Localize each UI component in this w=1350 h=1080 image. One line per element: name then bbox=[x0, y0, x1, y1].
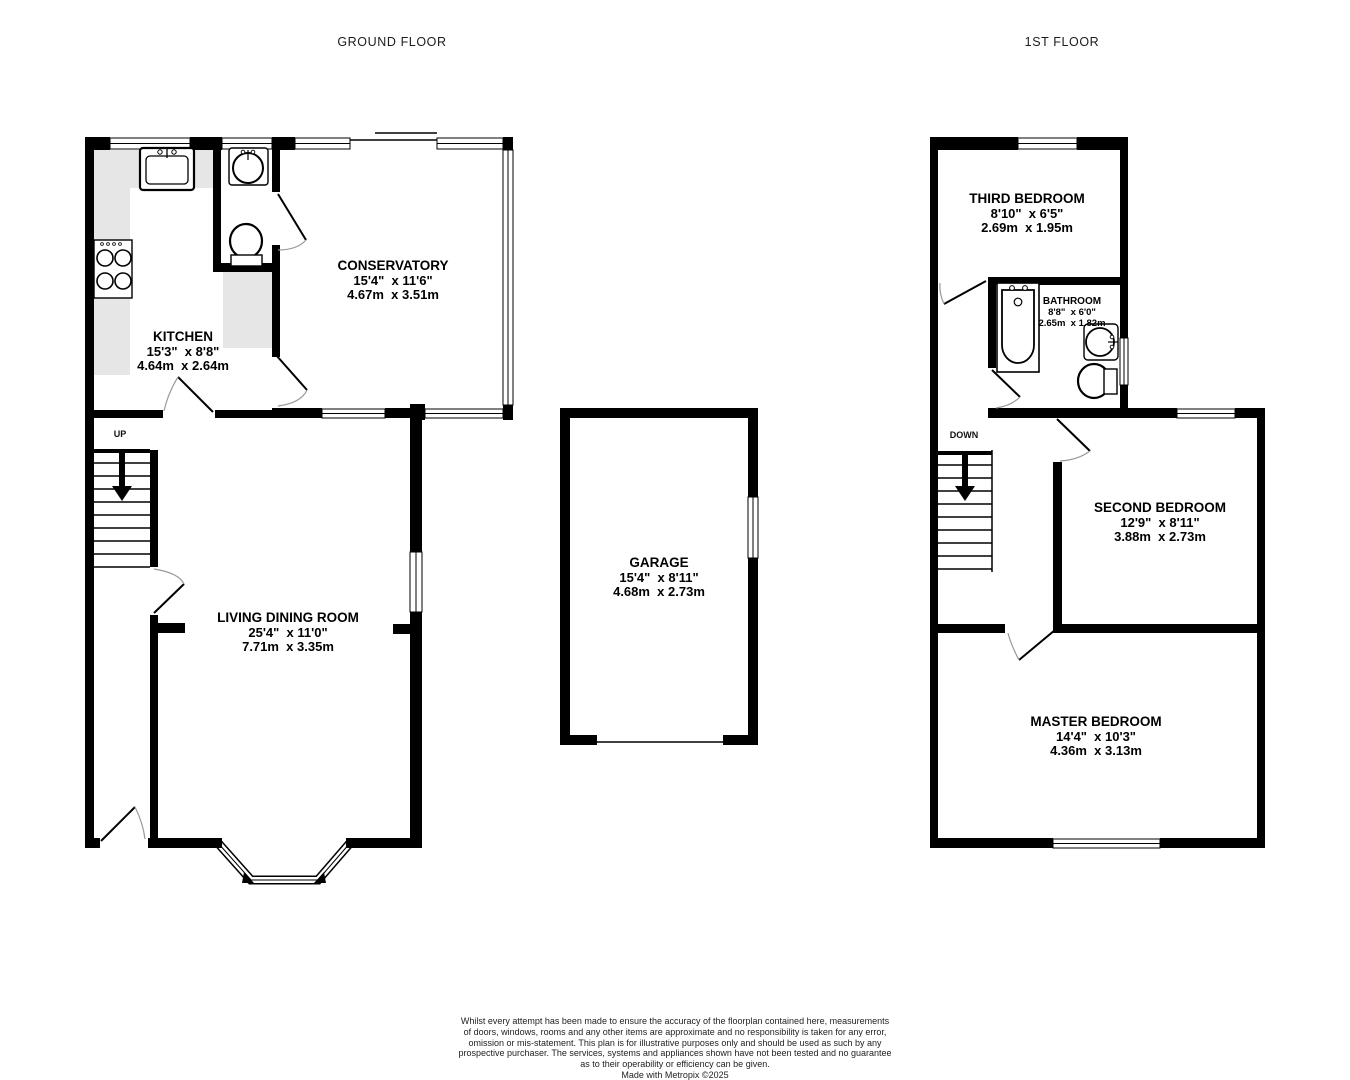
kitchen-sink-icon bbox=[140, 148, 194, 190]
room-dim-imperial: 8'10" x 6'5" bbox=[917, 207, 1137, 222]
stairs-up-arrow-icon bbox=[112, 453, 132, 501]
bathroom-basin-icon bbox=[1084, 324, 1118, 360]
garage-label: GARAGE 15'4" x 8'11" 4.68m x 2.73m bbox=[549, 556, 769, 600]
room-name: SECOND BEDROOM bbox=[1050, 501, 1270, 516]
second-bedroom-label: SECOND BEDROOM 12'9" x 8'11" 3.88m x 2.7… bbox=[1050, 501, 1270, 545]
stairs-down bbox=[938, 450, 992, 572]
room-name: GARAGE bbox=[549, 556, 769, 571]
stairs-up bbox=[94, 449, 150, 567]
garage-window bbox=[748, 497, 758, 558]
room-name: KITCHEN bbox=[73, 330, 293, 345]
ground-walls bbox=[85, 137, 513, 848]
disclaimer-line: of doors, windows, rooms and any other i… bbox=[0, 1027, 1350, 1038]
stairs-down-label: DOWN bbox=[943, 430, 985, 440]
conservatory-label: CONSERVATORY 15'4" x 11'6" 4.67m x 3.51m bbox=[283, 259, 503, 303]
room-dim-metric: 2.69m x 1.95m bbox=[917, 221, 1137, 236]
disclaimer: Whilst every attempt has been made to en… bbox=[0, 1016, 1350, 1080]
room-name: BATHROOM bbox=[992, 296, 1152, 307]
room-dim-metric: 4.67m x 3.51m bbox=[283, 288, 503, 303]
disclaimer-line: prospective purchaser. The services, sys… bbox=[0, 1048, 1350, 1059]
ground-floor-title: GROUND FLOOR bbox=[292, 35, 492, 49]
room-dim-imperial: 14'4" x 10'3" bbox=[986, 730, 1206, 745]
room-name: LIVING DINING ROOM bbox=[178, 611, 398, 626]
room-dim-metric: 4.64m x 2.64m bbox=[73, 359, 293, 374]
room-dim-imperial: 8'8" x 6'0" bbox=[992, 307, 1152, 318]
room-dim-imperial: 15'4" x 11'6" bbox=[283, 274, 503, 289]
first-floor-title: 1ST FLOOR bbox=[962, 35, 1162, 49]
room-dim-imperial: 15'4" x 8'11" bbox=[549, 571, 769, 586]
floorplan-page: GROUND FLOOR 1ST FLOOR KITCHEN 15'3" x 8… bbox=[0, 0, 1350, 1080]
ground-floor-plan bbox=[85, 133, 513, 883]
room-dim-metric: 4.68m x 2.73m bbox=[549, 585, 769, 600]
room-dim-imperial: 25'4" x 11'0" bbox=[178, 626, 398, 641]
disclaimer-line: omission or mis-statement. This plan is … bbox=[0, 1038, 1350, 1049]
wc-basin-icon bbox=[229, 148, 268, 185]
room-dim-imperial: 15'3" x 8'8" bbox=[73, 345, 293, 360]
room-name: MASTER BEDROOM bbox=[986, 715, 1206, 730]
third-bedroom-label: THIRD BEDROOM 8'10" x 6'5" 2.69m x 1.95m bbox=[917, 192, 1137, 236]
disclaimer-line: as to their operability or efficiency ca… bbox=[0, 1059, 1350, 1070]
living-dining-label: LIVING DINING ROOM 25'4" x 11'0" 7.71m x… bbox=[178, 611, 398, 655]
master-bedroom-label: MASTER BEDROOM 14'4" x 10'3" 4.36m x 3.1… bbox=[986, 715, 1206, 759]
bathroom-label: BATHROOM 8'8" x 6'0" 2.65m x 1.82m bbox=[992, 296, 1152, 329]
room-name: THIRD BEDROOM bbox=[917, 192, 1137, 207]
room-dim-metric: 7.71m x 3.35m bbox=[178, 640, 398, 655]
kitchen-label: KITCHEN 15'3" x 8'8" 4.64m x 2.64m bbox=[73, 330, 293, 374]
hob-icon bbox=[94, 240, 132, 298]
disclaimer-line: Made with Metropix ©2025 bbox=[0, 1070, 1350, 1080]
bay-window bbox=[214, 838, 354, 883]
room-dim-imperial: 12'9" x 8'11" bbox=[1050, 516, 1270, 531]
room-dim-metric: 2.65m x 1.82m bbox=[992, 318, 1152, 329]
room-name: CONSERVATORY bbox=[283, 259, 503, 274]
room-dim-metric: 3.88m x 2.73m bbox=[1050, 530, 1270, 545]
room-dim-metric: 4.36m x 3.13m bbox=[986, 744, 1206, 759]
disclaimer-line: Whilst every attempt has been made to en… bbox=[0, 1016, 1350, 1027]
wc-toilet-icon bbox=[230, 224, 262, 266]
stairs-up-label: UP bbox=[105, 429, 135, 439]
bathroom-toilet-icon bbox=[1078, 364, 1117, 398]
